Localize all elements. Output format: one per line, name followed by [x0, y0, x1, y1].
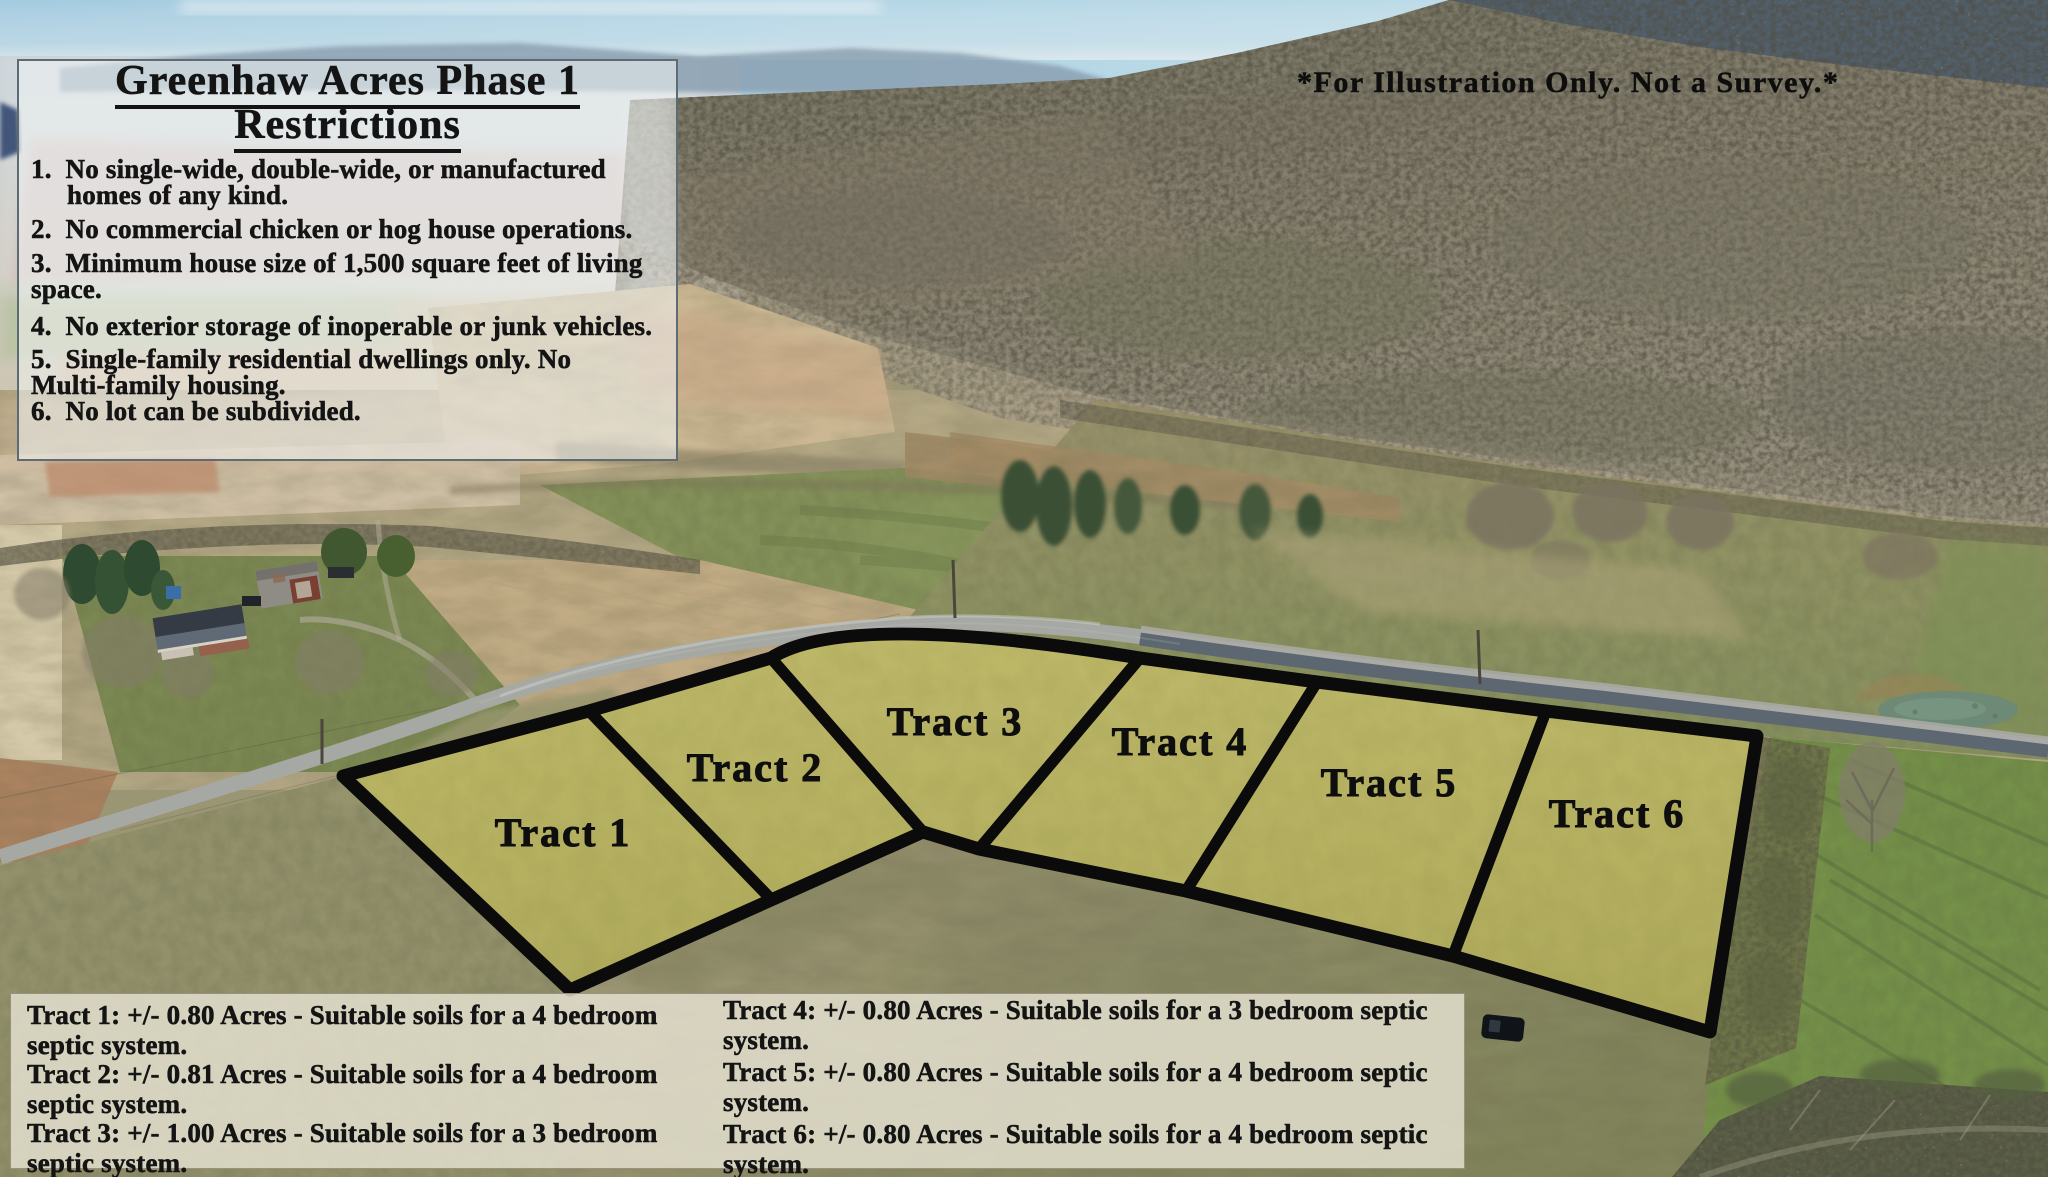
svg-text:Tract 3: Tract 3 [887, 699, 1024, 744]
svg-text:Tract 2: Tract 2 [687, 745, 824, 790]
svg-text:Tract 6: Tract 6 [1549, 791, 1686, 836]
svg-text:Tract 4: Tract 4 [1112, 719, 1249, 764]
svg-text:Tract 5: Tract 5 [1321, 760, 1458, 805]
svg-text:Tract 1: Tract 1 [495, 810, 632, 855]
